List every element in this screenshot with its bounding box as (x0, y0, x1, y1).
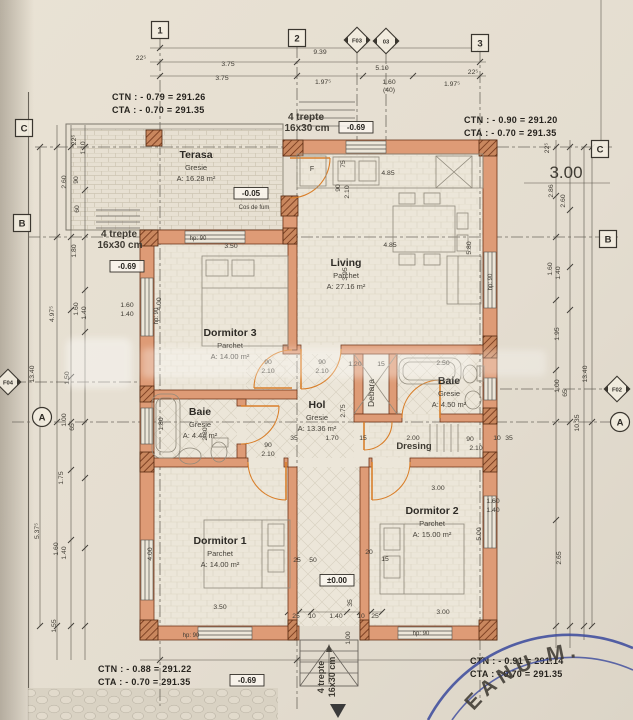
dimension-label: 20 (365, 549, 373, 556)
grid-bubble-label: F04 (3, 381, 14, 387)
dimension-label: 3.75 (221, 61, 234, 68)
annotation-label: Cos de fum (239, 205, 270, 211)
dimension-label: 1.97⁵ (315, 79, 331, 86)
dimension-label: 10 (493, 435, 501, 442)
annotation-label: 4 trepte (316, 661, 326, 694)
dimension-label: 1.40 (61, 546, 68, 559)
dimension-label: 1.95 (554, 327, 561, 340)
dimension-label: 1.00 (345, 631, 352, 644)
dimension-label: 4.85 (381, 170, 394, 177)
floor-plan-photo: 9.3922⁵3.755.1022⁵3.751.97⁵1.60(40)1.97⁵… (0, 0, 633, 720)
level-value: -0.69 (238, 676, 257, 685)
dimension-label: 3.00 (436, 609, 449, 616)
room-finish: Gresie (189, 420, 211, 429)
dimension-label: 90 (335, 184, 342, 192)
dimension-label: 5.37⁵ (34, 523, 41, 539)
grid-bubble-label: B (605, 234, 612, 245)
dimension-label: 2.86 (548, 184, 555, 197)
dimension-label: 1.75 (58, 471, 65, 484)
annotation-label: hp: 90 (190, 236, 207, 242)
dimension-label: 5.10 (375, 65, 388, 72)
room-area: A: 27.16 m² (327, 282, 366, 291)
grid-bubble-label: 03 (383, 40, 390, 46)
dimension-label: 22⁵ (544, 143, 551, 154)
annotation-label: 4 trepte (288, 112, 325, 123)
annotation-label: hp: 90 (488, 273, 494, 290)
dimension-label: 1.00 (61, 413, 68, 426)
grid-bubble-2: 2 (289, 30, 306, 47)
floor-plan-drawing: 9.3922⁵3.755.1022⁵3.751.97⁵1.60(40)1.97⁵… (0, 0, 633, 720)
dimension-label: 22⁵ (136, 55, 147, 62)
dimension-label: 3.50 (213, 604, 226, 611)
dimension-label: 65 (562, 389, 569, 397)
dimension-label: 4.00 (147, 547, 154, 560)
grid-bubble-A: A (33, 408, 52, 427)
room-finish: Parchet (419, 519, 446, 528)
ctn-note: CTN : - 0.79 = 291.26 (112, 92, 206, 102)
dimension-label: 90 (73, 176, 80, 184)
dimension-label: 1.60 (73, 302, 80, 315)
annotation-label: 16x30 cm (327, 657, 337, 698)
dimension-label: 1.80 (158, 417, 165, 430)
dimension-label: 3.75 (215, 75, 228, 82)
annotation-label: hp: 90 (154, 307, 160, 324)
room-finish: Gresie (438, 389, 460, 398)
annotation-label: 4 trepte (101, 229, 138, 240)
grid-bubble-3: 3 (472, 35, 489, 52)
grid-bubble-label: A (39, 412, 46, 423)
room-finish: Parchet (333, 271, 360, 280)
room-name: Dormitor 1 (193, 535, 246, 547)
room-name: Terasa (179, 149, 212, 161)
dimension-label: 65 (69, 423, 76, 431)
grid-bubble-label: C (597, 144, 604, 155)
cta-note: CTA : - 0.70 = 291.35 (464, 128, 557, 138)
dimension-label: 15 (381, 556, 389, 563)
grid-bubble-B: B (14, 215, 31, 232)
room-name: Dormitor 3 (203, 327, 256, 339)
grid-bubble-C: C (16, 120, 33, 137)
grid-bubble-label: 1 (157, 25, 163, 36)
dimension-label: 9.39 (313, 49, 326, 56)
dimension-label: 35 (347, 599, 354, 607)
grid-bubble-label: F02 (612, 388, 622, 394)
room-name: Living (331, 257, 362, 269)
dimension-label: 1.40 (329, 613, 342, 620)
grid-bubble-label: C (21, 123, 28, 134)
terrace-outline (66, 124, 283, 230)
ctn-note: CTN : - 0.90 = 291.20 (464, 115, 558, 125)
annotation-label: 16x30 cm (97, 240, 142, 251)
dimension-label: 5.80 (466, 241, 473, 254)
annotation-label: 16x30 cm (284, 123, 329, 134)
dimension-label: 75 (340, 160, 347, 168)
grid-bubble-A: A (611, 413, 630, 432)
level-value: -0.05 (242, 189, 261, 198)
dimension-label: 1.10 (80, 141, 87, 154)
dimension-label: 1.55 (51, 619, 58, 632)
room-area: A: 13.36 m² (298, 424, 337, 433)
grid-bubble-label: F03 (352, 39, 363, 45)
room-name: Hol (309, 399, 326, 411)
room-area: A: 4.50 m² (432, 400, 467, 409)
dimension-label: 10.35 (574, 414, 581, 431)
dimension-label: 10 (357, 613, 365, 620)
dimension-label: 1.80 (71, 244, 78, 257)
dimension-label: 5.00 (476, 527, 483, 540)
annotation-label: Debara (366, 379, 376, 407)
dimension-label: 3.00 (549, 163, 582, 182)
grid-bubble-label: 2 (294, 33, 299, 44)
dimension-label: (40) (383, 87, 395, 94)
dimension-label: 1.70 (325, 435, 338, 442)
room-name: Dormitor 2 (405, 505, 458, 517)
dimension-label: 10 (308, 613, 316, 620)
room-name: Baie (189, 406, 211, 418)
dimension-label: 4.97⁵ (49, 306, 56, 322)
dimension-label: 13.40 (29, 365, 36, 382)
dimension-label: 2.65 (556, 551, 563, 564)
room-finish: Parchet (207, 549, 234, 558)
dimension-label: 2.60 (560, 194, 567, 207)
grid-bubble-C: C (592, 141, 609, 158)
room-area: A: 15.00 m² (413, 530, 452, 539)
room-area: A: 14.00 m² (201, 560, 240, 569)
dimension-label: 3.00 (431, 485, 444, 492)
grid-bubble-label: A (617, 417, 624, 428)
level-value: -0.69 (347, 123, 366, 132)
dimension-label: 1.40 (555, 266, 562, 279)
dimension-label: 25 (292, 613, 300, 620)
level-value: -0.69 (118, 262, 137, 271)
room-area: A: 4.44 m² (183, 431, 218, 440)
dimension-label: 2.10 (469, 445, 482, 452)
annotation-label: hp: 90 (413, 631, 430, 637)
dimension-label: 1.40 (81, 306, 88, 319)
cta-note: CTA : - 0.70 = 291.35 (112, 105, 205, 115)
grid-bubble-label: 3 (477, 38, 482, 49)
dimension-label: 90 (466, 436, 474, 443)
annotation-label: Dresing (396, 441, 432, 452)
grid-bubble-label: B (19, 218, 26, 229)
dimension-label: 22⁵ (468, 69, 479, 76)
dimension-label: 1.60 (486, 498, 499, 505)
dimension-label: 2.60 (61, 175, 68, 188)
dimension-label: 1.97⁵ (444, 81, 460, 88)
dimension-label: 2.10 (344, 185, 351, 198)
dimension-label: 35 (290, 435, 298, 442)
dimension-label: 90 (264, 442, 272, 449)
dimension-label: 60 (74, 205, 81, 213)
annotation-label: F (310, 166, 314, 173)
dimension-label: 15 (359, 435, 367, 442)
dimension-label: 1.60 (547, 262, 554, 275)
room-area: A: 16.28 m² (177, 174, 216, 183)
pavement-texture (28, 688, 278, 720)
cta-note: CTA : - 0.70 = 291.35 (98, 677, 191, 687)
dimension-label: 1.00 (554, 379, 561, 392)
dimension-label: 1.60 (120, 302, 133, 309)
dimension-label: 1.40 (486, 507, 499, 514)
room-finish: Gresie (306, 413, 328, 422)
dimension-label: 4.85 (383, 242, 396, 249)
dimension-label: 50 (309, 557, 317, 564)
grid-bubble-1: 1 (152, 22, 169, 39)
dimension-label: 35 (505, 435, 513, 442)
dimension-label: 13.40 (582, 365, 589, 382)
annotation-label: hp: 90 (183, 633, 200, 639)
room-finish: Gresie (185, 163, 207, 172)
dimension-label: 3.50 (224, 243, 237, 250)
dimension-label: 2.10 (261, 451, 274, 458)
dimension-label: 25 (371, 613, 379, 620)
dimension-label: 2.75 (340, 404, 347, 417)
dimension-label: 25 (293, 557, 301, 564)
grid-bubble-B: B (600, 231, 617, 248)
ctn-note: CTN : - 0.88 = 291.22 (98, 664, 192, 674)
dimension-label: 1.60 (53, 542, 60, 555)
dimension-label: 1.60 (382, 79, 395, 86)
level-value: ±0.00 (327, 576, 348, 585)
dimension-label: 22⁵ (71, 135, 78, 146)
dimension-label: 1.40 (120, 311, 133, 318)
